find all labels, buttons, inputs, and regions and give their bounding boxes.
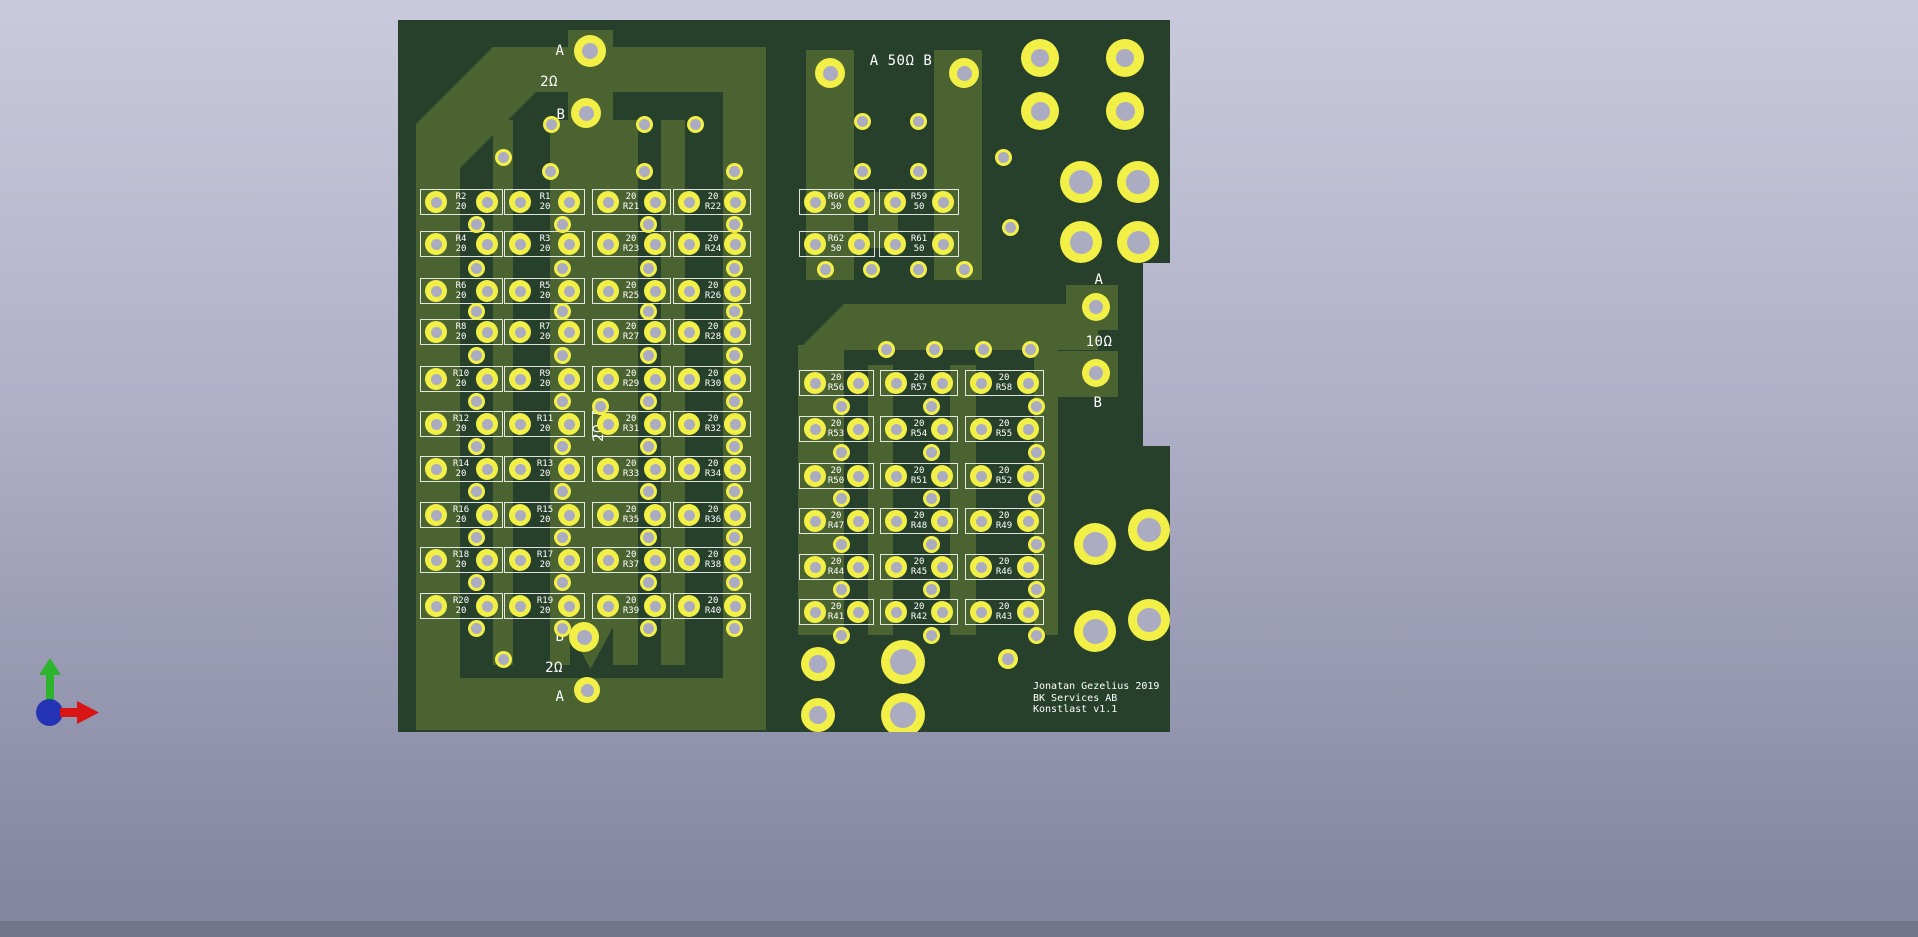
via <box>817 261 834 278</box>
resistor-ref: R35 <box>609 515 653 525</box>
resistor-value: 20 <box>897 373 941 383</box>
port-2ohm-bottom-b-pad <box>569 622 599 652</box>
resistor-R3-label: R320 <box>523 233 567 255</box>
via <box>640 347 657 364</box>
resistor-R1-label: R120 <box>523 191 567 213</box>
via <box>975 341 992 358</box>
drill-hole <box>890 649 916 675</box>
resistor-ref: R52 <box>982 476 1026 486</box>
resistor-value: 20 <box>439 202 483 212</box>
via <box>468 393 485 410</box>
resistor-ref: R39 <box>609 606 653 616</box>
drill-hole <box>1126 170 1150 194</box>
drill-hole <box>643 306 654 317</box>
via <box>554 347 571 364</box>
resistor-ref: R61 <box>897 234 941 244</box>
drill-hole <box>836 493 847 504</box>
via <box>640 574 657 591</box>
drill-hole <box>557 350 568 361</box>
drill-hole <box>498 654 509 665</box>
drill-hole <box>1031 584 1042 595</box>
via <box>468 216 485 233</box>
title-block: Jonatan Gezelius 2019 BK Services AB Kon… <box>1033 681 1159 716</box>
via <box>878 341 895 358</box>
via <box>833 627 850 644</box>
drill-hole <box>557 623 568 634</box>
drill-hole <box>471 577 482 588</box>
drill-hole <box>557 306 568 317</box>
resistor-ref: R49 <box>982 521 1026 531</box>
drill-hole <box>471 219 482 230</box>
resistor-value: 20 <box>691 550 735 560</box>
via <box>543 116 560 133</box>
mounting-pad <box>881 640 925 684</box>
via <box>1028 490 1045 507</box>
resistor-ref: R40 <box>691 606 735 616</box>
resistor-value: 20 <box>609 192 653 202</box>
resistor-value: 20 <box>814 602 858 612</box>
resistor-value: 20 <box>609 550 653 560</box>
drill-hole <box>546 119 557 130</box>
resistor-R41-label: 20R41 <box>814 601 858 623</box>
resistor-value: 20 <box>814 373 858 383</box>
drill-hole <box>482 374 493 385</box>
resistor-value: 20 <box>814 557 858 567</box>
resistor-R59-label: R5950 <box>897 191 941 213</box>
resistor-R35-label: 20R35 <box>609 504 653 526</box>
via <box>468 260 485 277</box>
resistor-value: 20 <box>439 469 483 479</box>
drill-hole <box>926 539 937 550</box>
resistor-R60-label: R6050 <box>814 191 858 213</box>
drill-hole <box>482 464 493 475</box>
via <box>910 261 927 278</box>
resistor-ref: R26 <box>691 291 735 301</box>
resistor-value: 20 <box>609 322 653 332</box>
drill-hole <box>926 584 937 595</box>
resistor-R15-label: R1520 <box>523 504 567 526</box>
mounting-pad <box>1128 509 1170 551</box>
via <box>554 438 571 455</box>
drill-hole <box>482 510 493 521</box>
resistor-value: 20 <box>982 373 1026 383</box>
via <box>640 438 657 455</box>
resistor-value: 20 <box>691 369 735 379</box>
resistor-ref: R41 <box>814 612 858 622</box>
resistor-R16-label: R1620 <box>439 504 483 526</box>
drill-hole <box>557 263 568 274</box>
via <box>1028 627 1045 644</box>
resistor-R44-label: 20R44 <box>814 556 858 578</box>
via <box>1028 536 1045 553</box>
drill-hole <box>823 66 838 81</box>
drill-hole <box>471 350 482 361</box>
drill-hole <box>1025 344 1036 355</box>
resistor-R4-label: R420 <box>439 233 483 255</box>
title-block-author: Jonatan Gezelius 2019 <box>1033 681 1159 693</box>
via <box>726 529 743 546</box>
resistor-ref: R57 <box>897 383 941 393</box>
via <box>640 620 657 637</box>
resistor-R36-label: 20R36 <box>691 504 735 526</box>
resistor-value: 20 <box>982 602 1026 612</box>
resistor-R20-label: R2020 <box>439 595 483 617</box>
via <box>833 398 850 415</box>
resistor-ref: R12 <box>439 414 483 424</box>
resistor-R33-label: 20R33 <box>609 458 653 480</box>
resistor-value: 20 <box>439 515 483 525</box>
resistor-value: 20 <box>897 557 941 567</box>
via <box>726 216 743 233</box>
silk-label-2ohm-bottom-value: 2Ω <box>545 660 563 676</box>
via <box>833 581 850 598</box>
resistor-ref: R21 <box>609 202 653 212</box>
3d-viewport[interactable]: A 2Ω B B 2Ω A 2Ω B A 50Ω B A 10Ω B Jonat… <box>0 0 1918 937</box>
resistor-value: 20 <box>691 322 735 332</box>
resistor-R22-label: 20R22 <box>691 191 735 213</box>
resistor-ref: R42 <box>897 612 941 622</box>
via <box>923 536 940 553</box>
resistor-value: 20 <box>523 515 567 525</box>
via <box>726 163 743 180</box>
resistor-value: 20 <box>691 281 735 291</box>
drill-hole <box>471 263 482 274</box>
resistor-ref: R9 <box>523 369 567 379</box>
via <box>923 444 940 461</box>
resistor-R39-label: 20R39 <box>609 595 653 617</box>
drill-hole <box>643 623 654 634</box>
mounting-pad <box>801 647 835 681</box>
via <box>495 149 512 166</box>
drill-hole <box>482 239 493 250</box>
via <box>554 260 571 277</box>
via <box>554 216 571 233</box>
drill-hole <box>957 66 972 81</box>
resistor-R13-label: R1320 <box>523 458 567 480</box>
via <box>863 261 880 278</box>
drill-hole <box>545 166 556 177</box>
drill-hole <box>913 264 924 275</box>
resistor-R57-label: 20R57 <box>897 372 941 394</box>
drill-hole <box>471 441 482 452</box>
drill-hole <box>643 219 654 230</box>
resistor-R31-label: 20R31 <box>609 413 653 435</box>
resistor-ref: R17 <box>523 550 567 560</box>
via <box>923 490 940 507</box>
resistor-value: 20 <box>691 505 735 515</box>
resistor-value: 50 <box>897 244 941 254</box>
drill-hole <box>643 486 654 497</box>
resistor-R26-label: 20R26 <box>691 280 735 302</box>
mounting-pad <box>1021 92 1059 130</box>
resistor-R10-label: R1020 <box>439 368 483 390</box>
drill-hole <box>820 264 831 275</box>
via <box>833 444 850 461</box>
drill-hole <box>482 555 493 566</box>
drill-hole <box>1137 518 1161 542</box>
silk-label-2ohm-bottom-a: A <box>556 689 565 705</box>
resistor-ref: R43 <box>982 612 1026 622</box>
drill-hole <box>1083 532 1108 557</box>
drill-hole <box>643 396 654 407</box>
drill-hole <box>913 166 924 177</box>
resistor-ref: R47 <box>814 521 858 531</box>
resistor-R34-label: 20R34 <box>691 458 735 480</box>
port-2ohm-top-a-pad <box>574 35 606 67</box>
resistor-value: 20 <box>523 244 567 254</box>
via <box>833 536 850 553</box>
resistor-R55-label: 20R55 <box>982 418 1026 440</box>
resistor-ref: R30 <box>691 379 735 389</box>
via <box>554 620 571 637</box>
resistor-value: 20 <box>609 234 653 244</box>
drill-hole <box>926 630 937 641</box>
via <box>468 620 485 637</box>
drill-hole <box>1083 619 1108 644</box>
drill-hole <box>729 486 740 497</box>
resistor-R11-label: R1120 <box>523 413 567 435</box>
drill-hole <box>1031 539 1042 550</box>
resistor-R17-label: R1720 <box>523 549 567 571</box>
resistor-R49-label: 20R49 <box>982 510 1026 532</box>
resistor-value: 20 <box>523 560 567 570</box>
resistor-value: 20 <box>523 424 567 434</box>
resistor-value: 20 <box>523 291 567 301</box>
resistor-ref: R55 <box>982 429 1026 439</box>
resistor-ref: R7 <box>523 322 567 332</box>
resistor-R50-label: 20R50 <box>814 465 858 487</box>
resistor-ref: R29 <box>609 379 653 389</box>
via <box>726 483 743 500</box>
resistor-value: 20 <box>523 469 567 479</box>
via <box>640 216 657 233</box>
drill-hole <box>729 577 740 588</box>
drill-hole <box>579 106 594 121</box>
resistor-value: 50 <box>897 202 941 212</box>
resistor-ref: R27 <box>609 332 653 342</box>
resistor-ref: R1 <box>523 192 567 202</box>
resistor-ref: R8 <box>439 322 483 332</box>
mounting-pad <box>1128 599 1170 641</box>
drill-hole <box>1031 493 1042 504</box>
origin-sphere-icon <box>36 699 63 726</box>
via <box>923 581 940 598</box>
resistor-ref: R53 <box>814 429 858 439</box>
resistor-ref: R3 <box>523 234 567 244</box>
drill-hole <box>1002 653 1014 665</box>
drill-hole <box>1089 300 1103 314</box>
drill-hole <box>1070 231 1093 254</box>
drill-hole <box>926 401 937 412</box>
drill-hole <box>643 577 654 588</box>
resistor-value: 50 <box>814 244 858 254</box>
via <box>640 483 657 500</box>
via <box>1028 444 1045 461</box>
drill-hole <box>926 447 937 458</box>
resistor-value: 20 <box>982 466 1026 476</box>
resistor-R42-label: 20R42 <box>897 601 941 623</box>
via <box>640 260 657 277</box>
drill-hole <box>729 166 740 177</box>
drill-hole <box>809 655 827 673</box>
via <box>636 163 653 180</box>
via <box>468 303 485 320</box>
resistor-ref: R15 <box>523 505 567 515</box>
resistor-R52-label: 20R52 <box>982 465 1026 487</box>
via <box>468 574 485 591</box>
resistor-ref: R60 <box>814 192 858 202</box>
via <box>640 393 657 410</box>
resistor-value: 20 <box>691 596 735 606</box>
resistor-R62-label: R6250 <box>814 233 858 255</box>
x-axis-arrow-icon <box>77 701 99 724</box>
mounting-pad <box>801 698 835 732</box>
resistor-ref: R14 <box>439 459 483 469</box>
resistor-ref: R62 <box>814 234 858 244</box>
resistor-ref: R37 <box>609 560 653 570</box>
mounting-pad <box>1106 39 1144 77</box>
mounting-pad <box>1117 221 1159 263</box>
resistor-value: 20 <box>439 560 483 570</box>
resistor-R7-label: R720 <box>523 321 567 343</box>
mounting-pad <box>1117 161 1159 203</box>
resistor-R58-label: 20R58 <box>982 372 1026 394</box>
resistor-R12-label: R1220 <box>439 413 483 435</box>
via <box>468 438 485 455</box>
resistor-ref: R24 <box>691 244 735 254</box>
via <box>726 574 743 591</box>
via <box>854 163 871 180</box>
drill-hole <box>595 401 606 412</box>
via <box>833 490 850 507</box>
resistor-ref: R18 <box>439 550 483 560</box>
via <box>726 303 743 320</box>
resistor-ref: R16 <box>439 505 483 515</box>
mounting-pad <box>1074 523 1116 565</box>
resistor-R29-label: 20R29 <box>609 368 653 390</box>
resistor-R48-label: 20R48 <box>897 510 941 532</box>
drill-hole <box>643 532 654 543</box>
via <box>640 303 657 320</box>
resistor-ref: R45 <box>897 567 941 577</box>
mounting-pad <box>1074 610 1116 652</box>
resistor-value: 20 <box>609 596 653 606</box>
resistor-value: 20 <box>609 369 653 379</box>
y-axis-arrow-icon <box>39 658 61 675</box>
drill-hole <box>1031 49 1049 67</box>
resistor-R5-label: R520 <box>523 280 567 302</box>
via <box>554 574 571 591</box>
silk-label-2ohm-top-value: 2Ω <box>540 74 558 90</box>
via <box>640 529 657 546</box>
resistor-R47-label: 20R47 <box>814 510 858 532</box>
resistor-value: 20 <box>897 602 941 612</box>
resistor-value: 20 <box>609 459 653 469</box>
resistor-ref: R46 <box>982 567 1026 577</box>
resistor-ref: R38 <box>691 560 735 570</box>
resistor-R45-label: 20R45 <box>897 556 941 578</box>
resistor-value: 20 <box>691 414 735 424</box>
drill-hole <box>1137 608 1161 632</box>
resistor-value: 20 <box>814 466 858 476</box>
resistor-value: 20 <box>523 202 567 212</box>
drill-hole <box>482 419 493 430</box>
drill-hole <box>913 116 924 127</box>
resistor-value: 20 <box>814 419 858 429</box>
drill-hole <box>1069 170 1093 194</box>
via <box>726 347 743 364</box>
via <box>995 149 1012 166</box>
resistor-R32-label: 20R32 <box>691 413 735 435</box>
copper-strip <box>950 365 976 635</box>
resistor-value: 20 <box>691 192 735 202</box>
drill-hole <box>581 684 594 697</box>
resistor-value: 20 <box>982 557 1026 567</box>
resistor-ref: R11 <box>523 414 567 424</box>
resistor-ref: R13 <box>523 459 567 469</box>
resistor-ref: R59 <box>897 192 941 202</box>
port-10ohm-b-pad <box>1082 359 1110 387</box>
resistor-R19-label: R1920 <box>523 595 567 617</box>
drill-hole <box>1031 401 1042 412</box>
via <box>910 113 927 130</box>
resistor-ref: R31 <box>609 424 653 434</box>
drill-hole <box>1031 102 1050 121</box>
drill-hole <box>729 306 740 317</box>
via <box>554 303 571 320</box>
mounting-pad <box>1060 161 1102 203</box>
resistor-R6-label: R620 <box>439 280 483 302</box>
drill-hole <box>1116 102 1135 121</box>
drill-hole <box>577 630 592 645</box>
drill-hole <box>729 263 740 274</box>
resistor-value: 20 <box>814 511 858 521</box>
resistor-ref: R25 <box>609 291 653 301</box>
drill-hole <box>557 219 568 230</box>
via <box>726 620 743 637</box>
resistor-value: 20 <box>439 424 483 434</box>
mounting-pad <box>998 649 1018 669</box>
via <box>1022 341 1039 358</box>
resistor-ref: R58 <box>982 383 1026 393</box>
drill-hole <box>643 263 654 274</box>
resistor-ref: R20 <box>439 596 483 606</box>
resistor-R27-label: 20R27 <box>609 321 653 343</box>
drill-hole <box>1116 49 1134 67</box>
axis-gizmo <box>33 655 105 737</box>
drill-hole <box>557 441 568 452</box>
resistor-ref: R28 <box>691 332 735 342</box>
drill-hole <box>866 264 877 275</box>
resistor-value: 20 <box>897 419 941 429</box>
resistor-R56-label: 20R56 <box>814 372 858 394</box>
drill-hole <box>729 532 740 543</box>
resistor-value: 50 <box>814 202 858 212</box>
drill-hole <box>639 166 650 177</box>
resistor-value: 20 <box>982 511 1026 521</box>
drill-hole <box>926 493 937 504</box>
silk-label-10ohm-value: 10Ω <box>1086 334 1113 350</box>
drill-hole <box>482 327 493 338</box>
drill-hole <box>1031 447 1042 458</box>
resistor-R9-label: R920 <box>523 368 567 390</box>
drill-hole <box>557 532 568 543</box>
via <box>956 261 973 278</box>
via <box>468 347 485 364</box>
resistor-R21-label: 20R21 <box>609 191 653 213</box>
resistor-value: 20 <box>897 466 941 476</box>
drill-hole <box>471 532 482 543</box>
